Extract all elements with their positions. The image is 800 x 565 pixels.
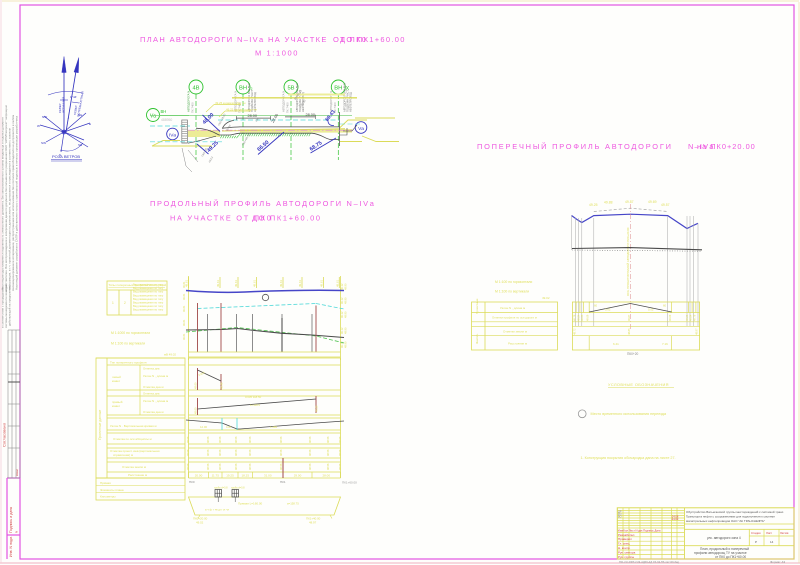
- svg-text:Вид размещения по типу: Вид размещения по типу: [133, 283, 164, 287]
- svg-text:П11-СК-2006.2-04-АД00-АД.СХ-04: П11-СК-2006.2-04-АД00-АД.СХ-04-ПЗ-лист29…: [619, 560, 680, 564]
- svg-text:Вид размещения по типу: Вид размещения по типу: [133, 301, 164, 305]
- svg-text:49.87: 49.87: [628, 314, 631, 321]
- svg-text:49.61: 49.61: [279, 280, 283, 287]
- svg-text:7.16: 7.16: [662, 342, 668, 346]
- svg-text:НЕФТЕПРОВОД: НЕФТЕПРОВОД: [349, 92, 353, 112]
- svg-text:Проектные: Проектные: [475, 298, 479, 314]
- svg-text:19.25: 19.25: [226, 474, 234, 478]
- svg-text:NW: NW: [42, 115, 47, 119]
- svg-text:Гл. спец.: Гл. спец.: [618, 542, 630, 546]
- svg-text:49.61: 49.61: [253, 280, 257, 287]
- svg-text:20.00: 20.00: [195, 474, 203, 478]
- svg-text:М 1:100 по вертикали: М 1:100 по вертикали: [111, 342, 145, 346]
- svg-text:48.56: 48.56: [248, 436, 252, 443]
- svg-text:а ч ф т чв дл тл: а ч ф т чв дл тл чл: [205, 508, 230, 512]
- svg-text:49.61: 49.61: [234, 280, 238, 287]
- svg-text:РОЗА ВЕТРОВ: РОЗА ВЕТРОВ: [52, 154, 80, 159]
- svg-text:1. Конструкция покрытия обо: 1. Конструкция покрытия обочародка дана …: [581, 456, 676, 460]
- svg-text:49.25 щебен. покрытие: 49.25 щебен. покрытие: [226, 107, 257, 111]
- svg-text:действующей на предприятии: действующей на предприятии: [8, 285, 12, 326]
- svg-text:Отметка дна: Отметка дна: [143, 392, 160, 396]
- svg-text:Обустройство Ватьеганской груп: Обустройство Ватьеганской группы месторо…: [686, 510, 784, 514]
- svg-text:48.56: 48.56: [218, 436, 222, 443]
- svg-text:49.57: 49.57: [661, 203, 670, 207]
- svg-text:ВН: ВН: [161, 109, 167, 114]
- svg-text:Вид размещения по типу: Вид размещения по типу: [133, 293, 164, 297]
- svg-text:49.61: 49.61: [298, 280, 302, 287]
- svg-text:48.56: 48.56: [218, 449, 222, 456]
- svg-text:ИСТИННЫЙ: ИСТИННЫЙ: [61, 97, 65, 113]
- svg-text:SW: SW: [41, 141, 46, 145]
- svg-text:48.56: 48.56: [326, 436, 330, 443]
- svg-text:Разработал: Разработал: [618, 533, 635, 537]
- svg-text:справочная) м: справочная) м: [113, 453, 133, 457]
- svg-text:11.75: 11.75: [212, 474, 220, 478]
- svg-text:48.78: 48.78: [693, 314, 696, 321]
- svg-text:ВН: ВН: [239, 85, 247, 91]
- svg-text:48.56: 48.56: [326, 449, 330, 456]
- svg-text:Листов: Листов: [780, 531, 789, 535]
- svg-text:IVа: IVа: [169, 132, 177, 138]
- svg-text:48.90: 48.90: [344, 311, 348, 318]
- svg-text:24.03: 24.03: [672, 517, 679, 521]
- svg-text:0.02: 0.02: [648, 308, 654, 312]
- svg-text:Уклон N . Вертикальная кривая: Уклон N . Вертикальная кривая м: [110, 424, 157, 428]
- svg-text:Инв. N подл.: Инв. N подл.: [9, 536, 13, 557]
- svg-text:труба d=0.8: труба d=0.8: [231, 487, 245, 490]
- svg-text:взам: взам: [15, 469, 19, 476]
- svg-text:49.02: 49.02: [542, 296, 550, 300]
- svg-text:Настоящий документ разработан: Настоящий документ разработан в САПР и д…: [15, 116, 19, 290]
- svg-text:48.56: 48.56: [186, 436, 190, 443]
- svg-text:49.69: 49.69: [648, 200, 657, 204]
- svg-text:Согласовано: Согласовано: [2, 422, 7, 447]
- svg-text:49.02: 49.02: [196, 521, 204, 525]
- svg-text:48.72: 48.72: [574, 328, 577, 335]
- svg-text:Рук. группы: Рук. группы: [618, 555, 634, 559]
- svg-text:12.00: 12.00: [200, 425, 207, 429]
- svg-text:L=118.5: L=118.5: [250, 403, 260, 407]
- svg-text:1: 1: [112, 301, 114, 305]
- svg-text:на ПК0+20.00: на ПК0+20.00: [697, 142, 756, 151]
- svg-text:48.84: 48.84: [577, 314, 580, 321]
- svg-text:Vа: Vа: [358, 126, 364, 132]
- svg-text:магистральных нефтепроводов ОА: магистральных нефтепроводов ОАО "АК ТРАН…: [686, 519, 765, 523]
- svg-text:мВ 49.02: мВ 49.02: [164, 353, 176, 357]
- svg-text:49.25 керамзитобет он: 49.25 керамзитобет он: [215, 101, 246, 105]
- svg-text:Отметка дна м: Отметка дна м: [143, 410, 164, 414]
- svg-text:Подпись и дата: Подпись и дата: [9, 507, 13, 533]
- svg-text:SE: SE: [78, 143, 82, 147]
- svg-text:49.61: 49.61: [182, 305, 186, 312]
- svg-text:Лист: Лист: [766, 531, 773, 535]
- svg-text:ПРОДОЛЬНЫЙ ПРОФИЛЬ АВТОДОРОГ: ПРОДОЛЬНЫЙ ПРОФИЛЬ АВТОДОРОГИ N–IVа: [150, 199, 376, 208]
- svg-text:49.69: 49.69: [587, 314, 590, 321]
- svg-text:48.56: 48.56: [206, 463, 210, 470]
- svg-text:Н. контр.: Н. контр.: [618, 546, 631, 550]
- svg-text:Vа: Vа: [150, 113, 156, 119]
- svg-text:ПК1+60.00: ПК1+60.00: [342, 481, 357, 485]
- svg-text:ВО: ВО: [618, 515, 622, 519]
- svg-text:49.25: 49.25: [581, 314, 584, 321]
- svg-text:кювет: кювет: [112, 404, 121, 408]
- svg-text:48.48: 48.48: [220, 382, 224, 389]
- svg-text:Стадия: Стадия: [751, 531, 761, 535]
- svg-text:49.20: 49.20: [315, 405, 319, 412]
- svg-text:49.25: 49.25: [589, 203, 598, 207]
- svg-text:48.56: 48.56: [279, 436, 283, 443]
- svg-text:18.25: 18.25: [241, 474, 249, 478]
- svg-text:48.56: 48.56: [338, 436, 342, 443]
- svg-text:60: 60: [594, 304, 598, 308]
- svg-text:48.97: 48.97: [309, 521, 317, 525]
- svg-text:2: 2: [124, 301, 126, 305]
- svg-text:48.90: 48.90: [344, 297, 348, 304]
- svg-text:Фактич.: Фактич.: [475, 333, 479, 344]
- svg-text:ПК0: ПК0: [189, 480, 195, 484]
- svg-text:Отметка дна: Отметка дна: [143, 367, 160, 371]
- svg-text:31.00: 31.00: [264, 474, 272, 478]
- svg-text:N: N: [15, 531, 19, 533]
- svg-text:48.56: 48.56: [234, 436, 238, 443]
- svg-text:48.56: 48.56: [234, 463, 238, 470]
- svg-text:28.00: 28.00: [248, 114, 258, 118]
- svg-text:улс. автодороги зона 4: улс. автодороги зона 4: [707, 536, 741, 540]
- svg-text:Вид размещения по типу: Вид размещения по типу: [133, 297, 164, 301]
- svg-text:Расстояние м: Расстояние м: [128, 473, 147, 477]
- svg-text:48.56: 48.56: [218, 463, 222, 470]
- svg-text:Километры: Километры: [100, 495, 116, 499]
- svg-text:Формат А3: Формат А3: [770, 560, 785, 564]
- svg-text:1.285: 1.285: [270, 425, 277, 429]
- svg-text:48.56: 48.56: [308, 436, 312, 443]
- svg-text:48.60: 48.60: [194, 382, 198, 389]
- svg-text:48.56: 48.56: [206, 449, 210, 456]
- svg-text:ВН: ВН: [334, 85, 342, 91]
- svg-text:УСЛОВНЫЕ ОБОЗНАЧЕНИЯ: УСЛОВНЫЕ ОБОЗНАЧЕНИЯ: [608, 382, 669, 387]
- svg-text:48.60: 48.60: [194, 407, 198, 414]
- svg-text:49.61: 49.61: [182, 319, 186, 326]
- svg-text:14: 14: [770, 540, 774, 544]
- svg-text:ПК 7400: ПК 7400: [191, 102, 195, 113]
- svg-text:48.56: 48.56: [186, 463, 190, 470]
- svg-text:48.56: 48.56: [326, 463, 330, 470]
- svg-text:48.56: 48.56: [234, 449, 238, 456]
- svg-text:60: 60: [663, 304, 667, 308]
- svg-text:Вид размещения по типу: Вид размещения по типу: [133, 290, 164, 294]
- svg-text:4.00: 4.00: [226, 425, 232, 429]
- svg-text:49.61: 49.61: [182, 293, 186, 300]
- svg-text:от ПК0 до ПК1+60.00: от ПК0 до ПК1+60.00: [715, 555, 746, 559]
- svg-text:49.61: 49.61: [182, 333, 186, 340]
- svg-text:Тип поперечного профиля: Тип поперечного профиля: [110, 361, 147, 365]
- svg-text:Уклон N , длина м: Уклон N , длина м: [500, 306, 525, 310]
- svg-text:48.84: 48.84: [690, 314, 693, 321]
- svg-text:48.56: 48.56: [186, 449, 190, 456]
- svg-text:48.85: 48.85: [628, 328, 631, 335]
- svg-text:ПЛАН АВТОДОРОГИ N–IVа НА У: ПЛАН АВТОДОРОГИ N–IVа НА УЧАСТКЕ: [140, 35, 328, 44]
- svg-text:488950: 488950: [161, 118, 172, 122]
- svg-text:Транспорта нефти с сооружениям: Транспорта нефти с сооружениями для подк…: [686, 515, 775, 519]
- svg-text:ПОПЕРЕЧНЫЙ ПРОФИЛЬ АВТОДОРОГ: ПОПЕРЕЧНЫЙ ПРОФИЛЬ АВТОДОРОГИ: [477, 142, 673, 151]
- svg-text:48.56: 48.56: [308, 463, 312, 470]
- svg-text:48.78: 48.78: [574, 314, 577, 321]
- svg-text:48.90: 48.90: [344, 327, 348, 334]
- svg-text:48.56: 48.56: [338, 449, 342, 456]
- svg-text:ПК 7400: ПК 7400: [286, 102, 290, 113]
- svg-text:М 1:100 по вертикали: М 1:100 по вертикали: [495, 290, 529, 294]
- svg-text:Рук. сектора: Рук. сектора: [618, 550, 636, 554]
- svg-text:Отметка земли м: Отметка земли м: [122, 465, 146, 469]
- svg-text:Вид размещения по типу: Вид размещения по типу: [133, 304, 164, 308]
- svg-text:28.00: 28.00: [322, 474, 330, 478]
- svg-text:6.41: 6.41: [613, 342, 619, 346]
- svg-text:0.02: 0.02: [605, 308, 611, 312]
- svg-text:Прямая L=160.00: Прямая L=160.00: [238, 502, 263, 506]
- svg-text:Отметка дна м: Отметка дна м: [143, 385, 164, 389]
- svg-text:ПК1: ПК1: [280, 480, 286, 484]
- svg-text:Р: Р: [755, 540, 757, 544]
- svg-text:Проектные данные: Проектные данные: [98, 410, 102, 440]
- svg-text:Уклон N , длина м: Уклон N , длина м: [143, 399, 168, 403]
- svg-text:М 1:1000: М 1:1000: [255, 49, 299, 58]
- svg-text:ОСЬ ПРОЕКТИРУЕМОЙ АВТОДОРОГИ П: ОСЬ ПРОЕКТИРУЕМОЙ АВТОДОРОГИ ПК0+20.00: [626, 227, 630, 296]
- svg-text:49.61: 49.61: [320, 280, 324, 287]
- svg-text:48.90: 48.90: [344, 283, 348, 290]
- svg-text:ДО ПК1+60.00: ДО ПК1+60.00: [340, 35, 406, 44]
- svg-text:49.88: 49.88: [604, 201, 613, 205]
- svg-text:49.61: 49.61: [335, 280, 339, 287]
- svg-text:0.005 118.50: 0.005 118.50: [245, 395, 262, 399]
- svg-text:48.56: 48.56: [338, 463, 342, 470]
- svg-text:М 1:100 по горизонтали: М 1:100 по горизонтали: [495, 280, 532, 284]
- svg-text:48.97: 48.97: [696, 328, 699, 335]
- svg-text:Место временного использован: Место временного использования переезда: [591, 412, 667, 416]
- svg-text:5В: 5В: [287, 85, 294, 91]
- svg-text:Отметки профиля по оси дороги: Отметки профиля по оси дороги м: [492, 316, 537, 320]
- svg-text:48.56: 48.56: [206, 436, 210, 443]
- svg-text:48.56: 48.56: [279, 449, 283, 456]
- svg-text:Проверил: Проверил: [618, 537, 632, 541]
- svg-text:ДО ПК1+60.00: ДО ПК1+60.00: [252, 214, 322, 223]
- svg-text:4В: 4В: [192, 85, 199, 91]
- svg-text:Элементы плана: Элементы плана: [100, 488, 124, 492]
- svg-text:Вид размещения по типу: Вид размещения по типу: [133, 286, 164, 290]
- svg-text:труба d=0.8: труба d=0.8: [214, 487, 228, 490]
- svg-text:48.56: 48.56: [248, 449, 252, 456]
- svg-text:29.00: 29.00: [294, 474, 302, 478]
- svg-text:E: E: [89, 122, 91, 126]
- svg-text:Отметка по оси абсциссы м: Отметка по оси абсциссы м: [113, 437, 152, 441]
- svg-text:а=158.75: а=158.75: [287, 502, 299, 506]
- svg-text:49.61: 49.61: [216, 280, 220, 287]
- svg-text:49.61: 49.61: [182, 281, 186, 288]
- svg-text:48.56: 48.56: [248, 463, 252, 470]
- svg-text:28.00: 28.00: [306, 113, 316, 117]
- svg-text:Вид размещения по типу: Вид размещения по типу: [133, 308, 164, 312]
- svg-text:NE: NE: [78, 113, 82, 117]
- svg-text:М 1:1000 по горизонтали: М 1:1000 по горизонтали: [111, 331, 150, 335]
- svg-text:Расстояние м: Расстояние м: [508, 342, 527, 346]
- svg-text:49.69: 49.69: [669, 314, 672, 321]
- svg-text:кювет: кювет: [112, 379, 121, 383]
- svg-text:Уклон N , длина м: Уклон N , длина м: [143, 374, 168, 378]
- svg-text:Прямая: Прямая: [100, 481, 111, 485]
- svg-text:W: W: [37, 124, 40, 128]
- svg-text:49.87: 49.87: [625, 200, 634, 204]
- svg-text:Отметки земли м: Отметки земли м: [503, 330, 527, 334]
- svg-text:49.25: 49.25: [686, 314, 689, 321]
- svg-text:48.90: 48.90: [344, 341, 348, 348]
- svg-text:ПК0+20: ПК0+20: [627, 352, 639, 356]
- svg-text:1°44': 1°44': [70, 95, 77, 99]
- svg-text:48.56: 48.56: [308, 449, 312, 456]
